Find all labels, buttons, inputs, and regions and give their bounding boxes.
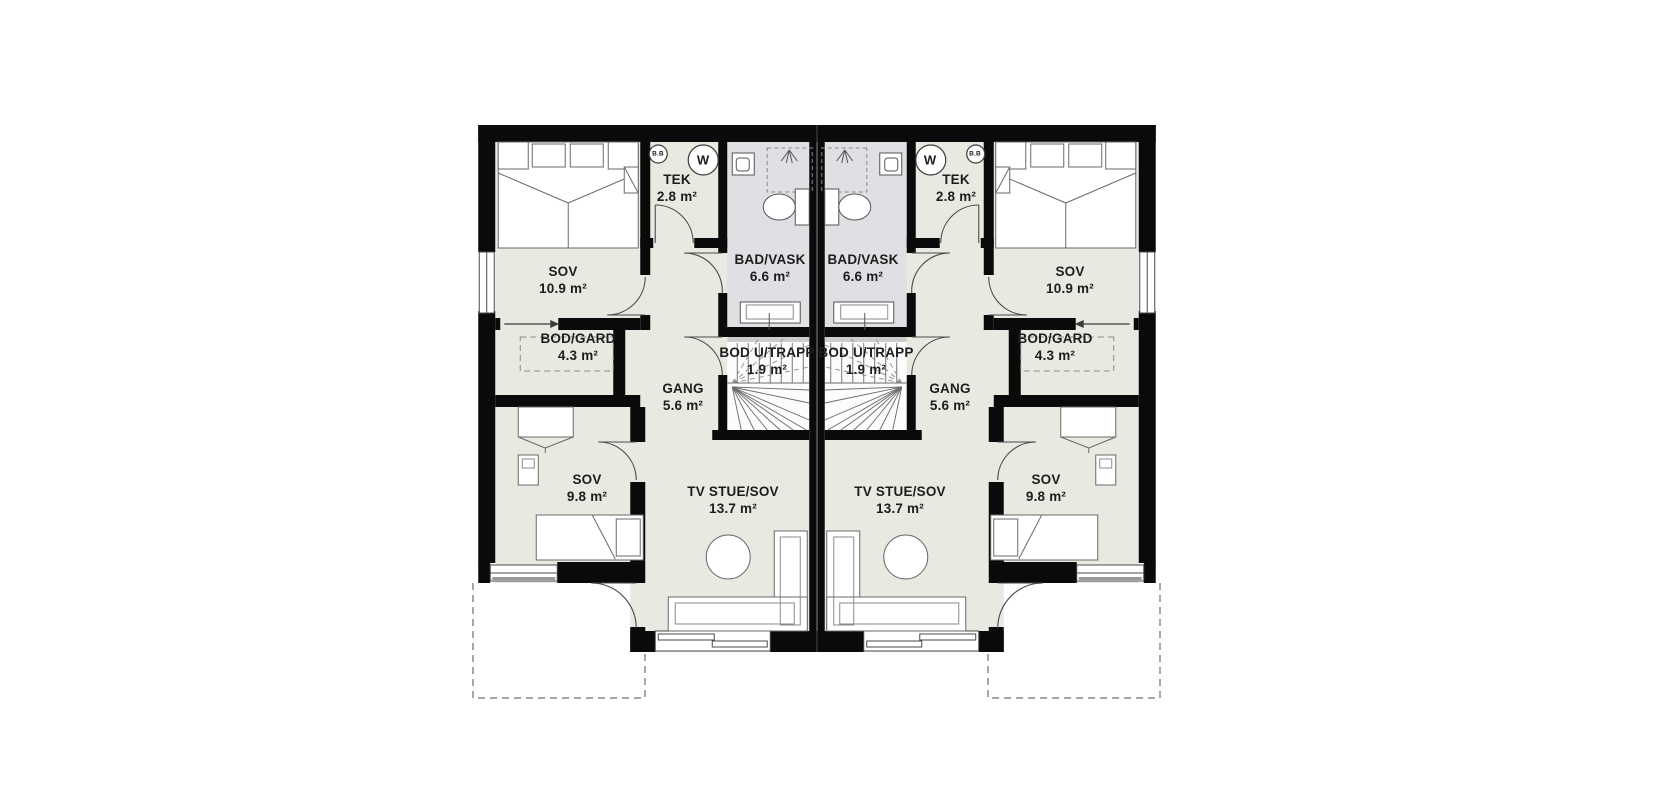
room-area: 10.9 m² [1046, 280, 1094, 297]
room-name: GANG [662, 380, 703, 397]
room-label-tv-stue: TV STUE/SOV 13.7 m² [854, 483, 945, 517]
room-label-tek: TEK 2.8 m² [657, 171, 697, 205]
room-name: TV STUE/SOV [854, 483, 945, 500]
room-label-bod-gard: BOD/GARD 4.3 m² [1017, 330, 1092, 364]
room-name: BOD/GARD [540, 330, 615, 347]
room-area: 1.9 m² [747, 361, 787, 378]
room-name: BOD/GARD [1017, 330, 1092, 347]
room-label-tv-stue: TV STUE/SOV 13.7 m² [687, 483, 778, 517]
room-area: 13.7 m² [876, 500, 924, 517]
room-area: 9.8 m² [567, 488, 607, 505]
room-name: TEK [663, 171, 691, 188]
room-label-bad-vask: BAD/VASK 6.6 m² [827, 251, 898, 285]
water-heater-label: B.B [969, 151, 981, 158]
room-name: SOV [1031, 471, 1060, 488]
room-name: SOV [572, 471, 601, 488]
room-area: 13.7 m² [709, 500, 757, 517]
room-name: SOV [548, 263, 577, 280]
room-name: BAD/VASK [734, 251, 805, 268]
terrace-left-outline [473, 583, 645, 698]
room-name: TEK [942, 171, 970, 188]
room-label-bad-vask: BAD/VASK 6.6 m² [734, 251, 805, 285]
room-label-tek: TEK 2.8 m² [936, 171, 976, 205]
terrace-right-outline [988, 583, 1160, 698]
room-label-sov-main: SOV 10.9 m² [539, 263, 587, 297]
room-label-sov-small: SOV 9.8 m² [1026, 471, 1066, 505]
room-name: SOV [1055, 263, 1084, 280]
room-name: BOD U/TRAPP [719, 344, 814, 361]
room-label-bod-u-trapp: BOD U/TRAPP 1.9 m² [719, 344, 814, 378]
room-name: BAD/VASK [827, 251, 898, 268]
room-area: 10.9 m² [539, 280, 587, 297]
room-area: 2.8 m² [936, 188, 976, 205]
water-heater-label: B.B [652, 151, 664, 158]
room-label-bod-u-trapp: BOD U/TRAPP 1.9 m² [818, 344, 913, 378]
room-area: 4.3 m² [1035, 347, 1075, 364]
room-area: 5.6 m² [930, 397, 970, 414]
room-name: TV STUE/SOV [687, 483, 778, 500]
washing-machine-label: W [924, 153, 936, 168]
room-label-sov-small: SOV 9.8 m² [567, 471, 607, 505]
room-area: 9.8 m² [1026, 488, 1066, 505]
room-area: 1.9 m² [846, 361, 886, 378]
room-area: 2.8 m² [657, 188, 697, 205]
room-label-gang: GANG 5.6 m² [929, 380, 970, 414]
room-area: 6.6 m² [750, 268, 790, 285]
washing-machine-label: W [697, 153, 709, 168]
room-label-bod-gard: BOD/GARD 4.3 m² [540, 330, 615, 364]
room-area: 5.6 m² [663, 397, 703, 414]
site-overlay [0, 0, 1670, 800]
room-area: 6.6 m² [843, 268, 883, 285]
floor-plan-canvas: SOV 10.9 m² TEK 2.8 m² BAD/VASK 6.6 m² B… [0, 0, 1670, 800]
room-label-gang: GANG 5.6 m² [662, 380, 703, 414]
room-area: 4.3 m² [558, 347, 598, 364]
room-label-sov-main: SOV 10.9 m² [1046, 263, 1094, 297]
room-name: GANG [929, 380, 970, 397]
room-name: BOD U/TRAPP [818, 344, 913, 361]
